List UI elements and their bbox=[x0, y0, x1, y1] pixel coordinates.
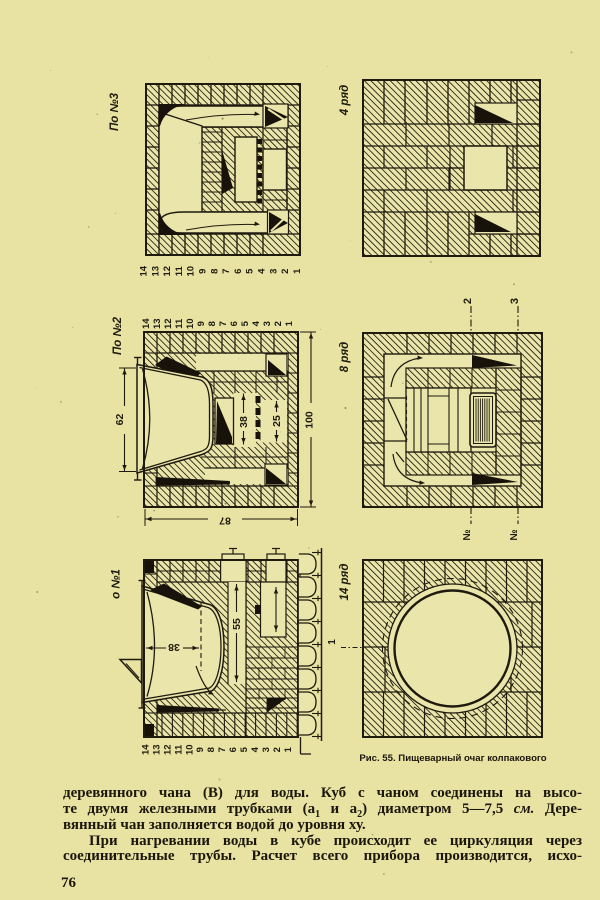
svg-text:3: 3 bbox=[268, 269, 279, 274]
svg-text:4: 4 bbox=[251, 320, 262, 326]
svg-text:4 ряд: 4 ряд bbox=[339, 85, 351, 117]
svg-text:100: 100 bbox=[304, 411, 316, 429]
svg-text:8 ряд: 8 ряд bbox=[339, 342, 351, 373]
svg-text:5: 5 bbox=[245, 268, 256, 274]
svg-text:6: 6 bbox=[233, 269, 244, 274]
svg-text:14: 14 bbox=[141, 318, 152, 329]
svg-text:№: № bbox=[509, 529, 520, 540]
svg-text:1: 1 bbox=[327, 639, 338, 645]
svg-text:11: 11 bbox=[174, 318, 185, 329]
svg-text:38: 38 bbox=[168, 641, 180, 653]
svg-text:14 ряд: 14 ряд bbox=[339, 564, 351, 601]
svg-text:9: 9 bbox=[195, 747, 206, 752]
svg-text:9: 9 bbox=[198, 269, 209, 274]
svg-text:13: 13 bbox=[151, 744, 162, 755]
svg-text:12: 12 bbox=[163, 318, 174, 329]
svg-text:12: 12 bbox=[162, 266, 173, 277]
svg-text:8: 8 bbox=[209, 269, 220, 274]
svg-text:14: 14 bbox=[139, 265, 150, 276]
svg-text:3: 3 bbox=[509, 298, 521, 304]
svg-text:3: 3 bbox=[262, 321, 273, 326]
svg-text:9: 9 bbox=[196, 321, 207, 326]
svg-text:12: 12 bbox=[162, 744, 173, 755]
svg-text:13: 13 bbox=[150, 266, 161, 277]
svg-text:№: № bbox=[462, 529, 473, 540]
svg-text:7: 7 bbox=[221, 269, 232, 274]
svg-text:2: 2 bbox=[273, 321, 284, 326]
svg-text:1: 1 bbox=[284, 320, 295, 326]
svg-text:10: 10 bbox=[184, 744, 195, 755]
svg-text:7: 7 bbox=[217, 747, 228, 752]
svg-text:2: 2 bbox=[280, 269, 291, 274]
svg-text:8: 8 bbox=[206, 747, 217, 752]
svg-text:87: 87 bbox=[219, 515, 231, 527]
svg-text:11: 11 bbox=[174, 265, 185, 276]
svg-text:1: 1 bbox=[283, 746, 294, 752]
svg-text:8: 8 bbox=[207, 321, 218, 326]
svg-text:По №3: По №3 bbox=[109, 92, 121, 131]
svg-text:11: 11 bbox=[173, 744, 184, 755]
svg-text:6: 6 bbox=[228, 747, 239, 752]
svg-text:5: 5 bbox=[240, 320, 251, 326]
svg-text:38: 38 bbox=[238, 416, 250, 428]
svg-text:10: 10 bbox=[186, 266, 197, 277]
svg-text:10: 10 bbox=[185, 318, 196, 329]
svg-text:25: 25 bbox=[271, 415, 283, 427]
svg-text:По №2: По №2 bbox=[112, 316, 124, 355]
svg-text:2: 2 bbox=[272, 747, 283, 752]
svg-text:55: 55 bbox=[231, 618, 243, 630]
svg-text:4: 4 bbox=[250, 746, 261, 752]
svg-text:4: 4 bbox=[257, 268, 268, 274]
svg-text:14: 14 bbox=[141, 744, 152, 755]
svg-text:2: 2 bbox=[462, 298, 474, 304]
svg-text:7: 7 bbox=[218, 321, 229, 326]
svg-text:о №1: о №1 bbox=[111, 569, 123, 599]
svg-text:13: 13 bbox=[152, 318, 163, 329]
svg-text:5: 5 bbox=[239, 746, 250, 752]
svg-text:1: 1 bbox=[292, 268, 303, 274]
svg-text:6: 6 bbox=[229, 321, 240, 326]
svg-text:3: 3 bbox=[261, 747, 272, 752]
svg-text:62: 62 bbox=[114, 414, 126, 426]
